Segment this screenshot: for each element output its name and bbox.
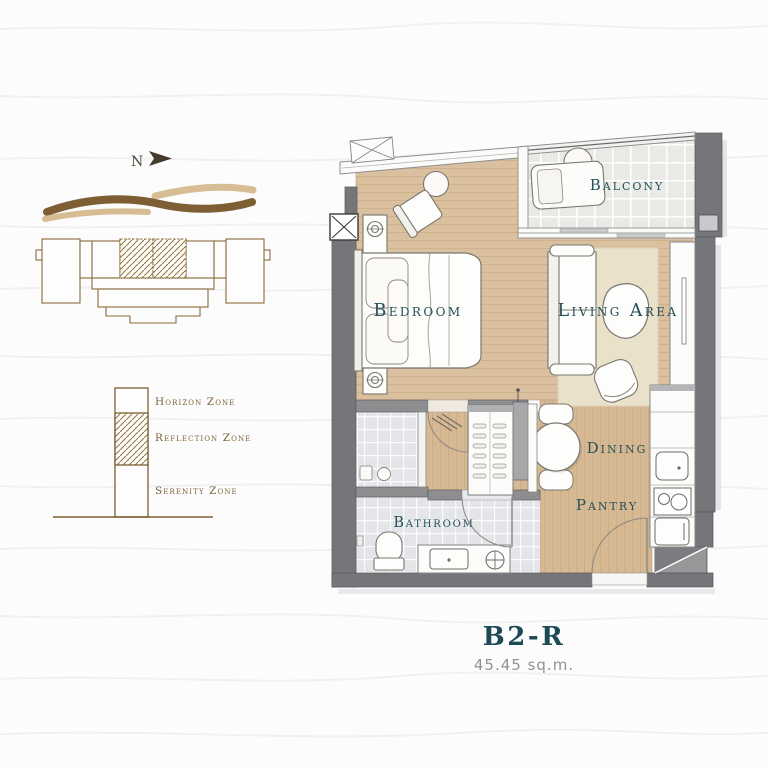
dining-table: [532, 423, 580, 471]
kitchen-sink: [656, 452, 688, 480]
bedroom-door-sill: [428, 400, 468, 412]
tv: [682, 278, 686, 344]
vanity: [418, 545, 510, 573]
wall-bathroom-top-left: [356, 400, 428, 412]
entrance-door-sill: [592, 573, 647, 585]
wall-bottom-right: [647, 573, 713, 587]
sliding-door-leaf-1: [560, 229, 608, 232]
unit-name: B2-R: [483, 622, 565, 652]
column-x-symbol: [330, 214, 358, 240]
kitchen-counter: [650, 385, 695, 547]
cooktop: [654, 488, 691, 515]
shower-control: [360, 466, 372, 480]
zone-label-serenity: Serenity Zone: [155, 485, 238, 497]
planter-box: [350, 137, 394, 163]
wall-left: [332, 226, 356, 587]
fridge: [655, 518, 689, 545]
shower-glass: [418, 412, 426, 487]
zone-tower-highlight: [115, 413, 148, 465]
unit-title: B2-R 45.45 sq.m.: [474, 622, 574, 674]
floorplan-canvas: N Horizon Zone Reflection Zone Serenity …: [0, 0, 768, 768]
wall-bottom-left: [332, 573, 592, 587]
nightstand-bottom: [363, 366, 387, 394]
dining-chair-top: [539, 404, 573, 424]
nightstand-top: [363, 215, 387, 255]
shower-drain: [378, 468, 391, 481]
towel-holder: [357, 536, 363, 546]
column-detail-box: [699, 215, 718, 231]
tall-cabinet: [513, 402, 528, 480]
label-dining: Dining: [587, 439, 648, 457]
label-living-area: Living Area: [558, 301, 679, 321]
partition-panel: [528, 404, 537, 492]
floor-plan: Bedroom Living Area Balcony Dining Pantr…: [330, 132, 727, 594]
wall-bathroom-mid-left: [428, 490, 462, 500]
floorplan-page: N Horizon Zone Reflection Zone Serenity …: [0, 0, 768, 768]
label-bathroom: Bathroom: [393, 515, 474, 531]
balcony-side-wall: [518, 146, 528, 238]
wall-shower-bottom: [356, 487, 428, 497]
footprint-unit-highlight: [120, 239, 153, 279]
footprint-unit-highlight-2: [153, 239, 186, 279]
wall-left-stub: [345, 187, 357, 217]
zone-label-reflection: Reflection Zone: [155, 432, 251, 444]
unit-area: 45.45 sq.m.: [474, 656, 574, 674]
zone-label-horizon: Horizon Zone: [155, 396, 235, 408]
north-label: N: [131, 154, 143, 170]
wall-right: [695, 237, 715, 512]
service-shaft: [655, 547, 707, 573]
dining-chair-bottom: [539, 470, 573, 490]
toilet: [374, 532, 404, 570]
sliding-door-leaf-2: [617, 234, 665, 237]
label-bedroom: Bedroom: [373, 301, 462, 321]
label-balcony: Balcony: [590, 176, 665, 194]
label-pantry: Pantry: [576, 496, 638, 514]
